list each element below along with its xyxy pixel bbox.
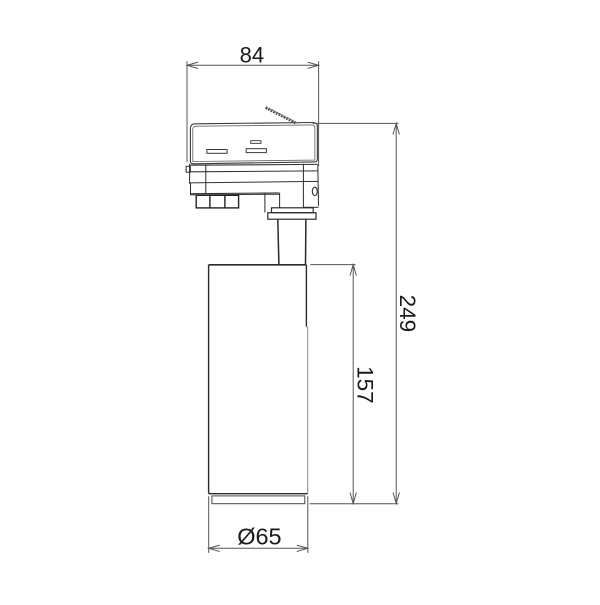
svg-text:Ø65: Ø65 [237, 523, 281, 549]
svg-text:157: 157 [353, 366, 378, 404]
svg-text:84: 84 [240, 42, 264, 67]
svg-text:249: 249 [395, 295, 420, 333]
